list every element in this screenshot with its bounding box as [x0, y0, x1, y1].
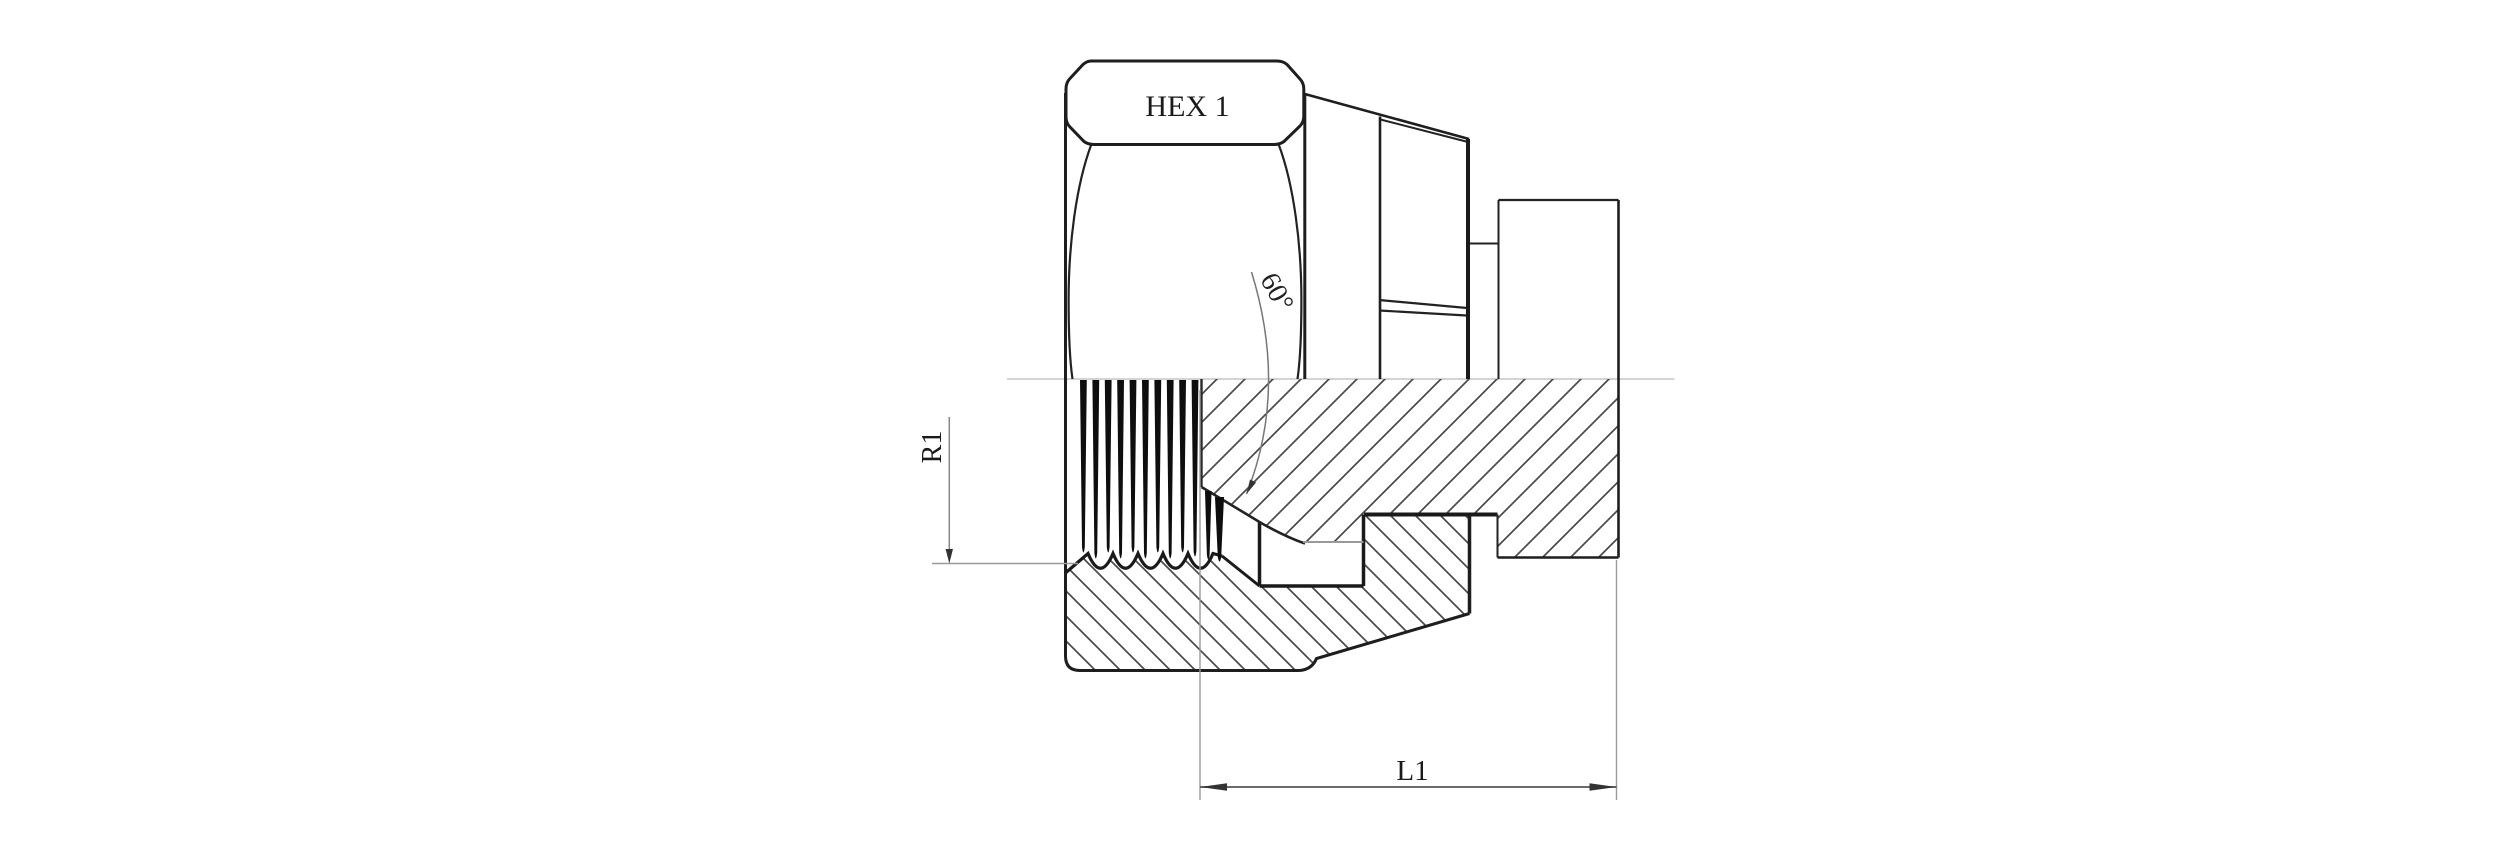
svg-text:L1: L1 [1396, 755, 1428, 787]
svg-text:HEX 1: HEX 1 [1145, 90, 1229, 123]
svg-text:R1: R1 [917, 431, 948, 464]
